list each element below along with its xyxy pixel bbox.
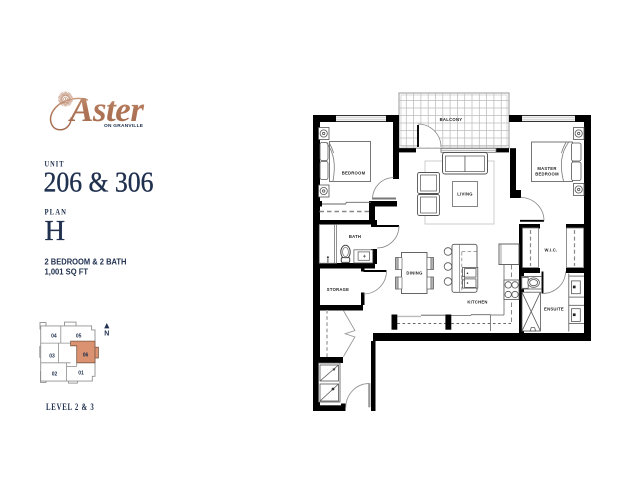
svg-text:MASTER: MASTER [537,166,556,171]
svg-text:04: 04 [51,334,57,340]
svg-text:206 & 306: 206 & 306 [44,168,154,199]
svg-text:BATH: BATH [349,234,361,239]
svg-text:STORAGE: STORAGE [327,287,349,292]
svg-text:ENSUITE: ENSUITE [544,307,564,312]
svg-text:H: H [45,216,66,247]
svg-text:01: 01 [78,371,84,377]
svg-text:ON GRANVILLE: ON GRANVILLE [104,123,144,129]
svg-text:W.I.C.: W.I.C. [545,248,558,253]
svg-text:05: 05 [76,334,82,340]
svg-text:PLAN: PLAN [45,207,68,217]
svg-text:03: 03 [49,354,55,360]
svg-text:1,001 SQ FT: 1,001 SQ FT [45,267,89,277]
svg-text:KITCHEN: KITCHEN [467,300,487,305]
svg-text:BALCONY: BALCONY [440,117,463,122]
svg-text:BEDROOM: BEDROOM [535,172,559,177]
svg-text:BEDROOM: BEDROOM [342,171,366,176]
svg-text:02: 02 [52,372,58,378]
svg-text:2 BEDROOM & 2 BATH: 2 BEDROOM & 2 BATH [45,257,127,267]
svg-text:06: 06 [83,353,89,359]
svg-text:N: N [104,331,109,338]
svg-text:LEVEL 2 & 3: LEVEL 2 & 3 [46,403,95,413]
svg-text:LIVING: LIVING [457,192,472,197]
svg-text:DINING: DINING [406,271,422,276]
